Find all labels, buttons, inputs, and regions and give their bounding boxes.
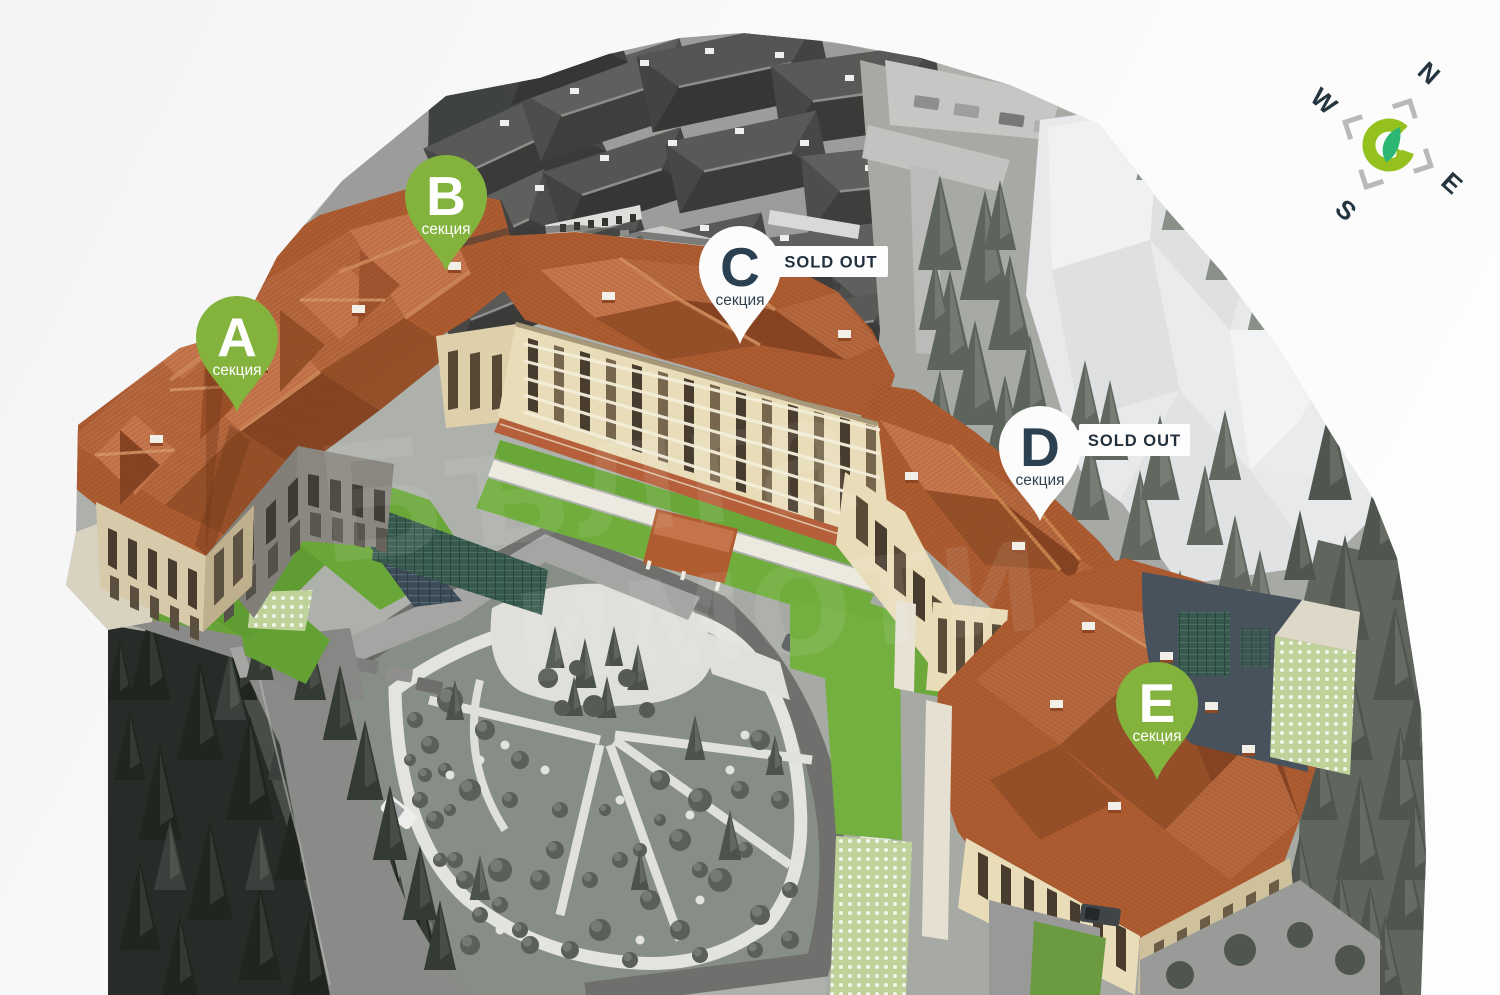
svg-text:E: E — [1139, 672, 1176, 734]
svg-text:B: B — [426, 165, 466, 227]
svg-text:секция: секция — [715, 292, 764, 309]
svg-text:D: D — [1020, 416, 1060, 478]
svg-text:SOLD OUT: SOLD OUT — [1088, 432, 1181, 450]
svg-text:C: C — [720, 236, 760, 298]
svg-text:секция: секция — [1015, 472, 1064, 489]
svg-text:секция: секция — [1132, 728, 1181, 745]
svg-text:секция: секция — [212, 362, 261, 379]
svg-text:секция: секция — [421, 221, 470, 238]
svg-text:A: A — [217, 306, 257, 368]
svg-text:SOLD OUT: SOLD OUT — [784, 254, 877, 272]
